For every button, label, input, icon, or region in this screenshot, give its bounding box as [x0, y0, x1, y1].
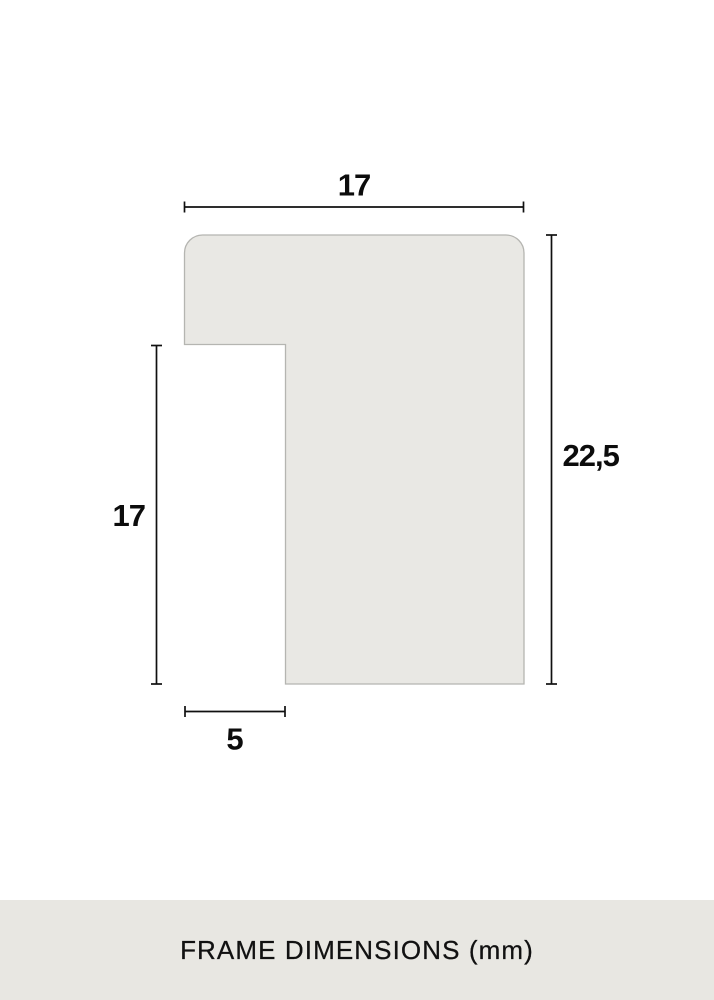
- svg-text:17: 17: [338, 168, 370, 203]
- svg-text:5: 5: [226, 722, 243, 757]
- svg-text:17: 17: [113, 498, 145, 533]
- svg-text:22,5: 22,5: [563, 438, 620, 473]
